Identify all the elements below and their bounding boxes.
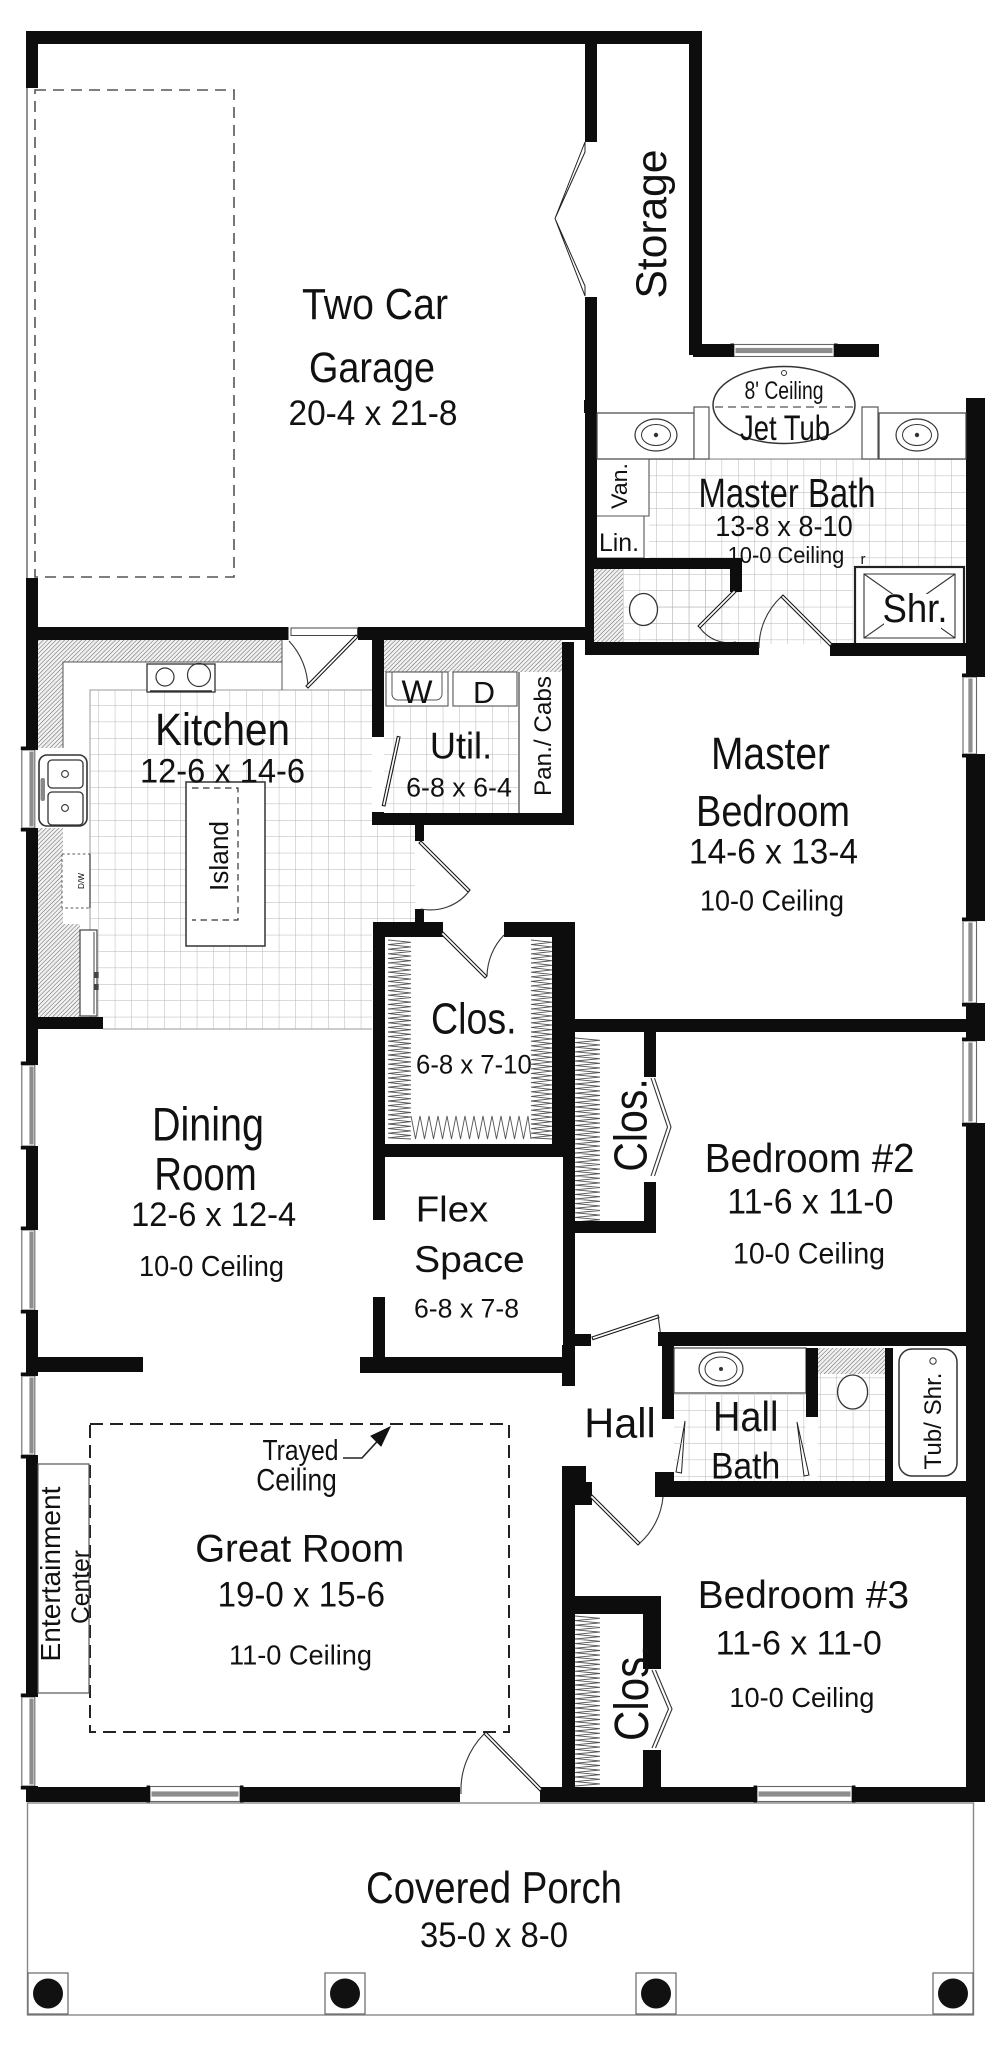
svg-text:r: r bbox=[861, 551, 866, 568]
svg-text:10-0 Ceiling: 10-0 Ceiling bbox=[139, 1251, 284, 1283]
svg-text:Shr.: Shr. bbox=[883, 587, 948, 631]
svg-text:Garage: Garage bbox=[309, 344, 435, 392]
svg-text:10-0 Ceiling: 10-0 Ceiling bbox=[700, 885, 844, 917]
svg-text:W: W bbox=[402, 673, 433, 710]
svg-text:11-0 Ceiling: 11-0 Ceiling bbox=[229, 1639, 372, 1670]
svg-text:Clos.: Clos. bbox=[431, 995, 517, 1043]
svg-text:13-8 x 8-10: 13-8 x 8-10 bbox=[715, 511, 853, 543]
svg-text:35-0 x 8-0: 35-0 x 8-0 bbox=[420, 1916, 568, 1955]
svg-text:Storage: Storage bbox=[629, 150, 676, 299]
svg-text:Van.: Van. bbox=[607, 463, 632, 509]
svg-text:20-4 x 21-8: 20-4 x 21-8 bbox=[289, 393, 458, 433]
svg-text:12-6 x 14-6: 12-6 x 14-6 bbox=[140, 753, 305, 791]
svg-text:19-0 x 15-6: 19-0 x 15-6 bbox=[218, 1575, 385, 1614]
svg-text:10-0 Ceiling: 10-0 Ceiling bbox=[729, 1682, 874, 1713]
svg-text:Entertainment: Entertainment bbox=[35, 1486, 66, 1661]
svg-text:Island: Island bbox=[204, 821, 234, 891]
svg-text:6-8 x 6-4: 6-8 x 6-4 bbox=[406, 773, 512, 803]
svg-text:Covered Porch: Covered Porch bbox=[366, 1864, 622, 1913]
svg-text:Hall: Hall bbox=[584, 1400, 656, 1447]
svg-text:10-0 Ceiling: 10-0 Ceiling bbox=[733, 1237, 885, 1270]
svg-text:6-8 x 7-10: 6-8 x 7-10 bbox=[416, 1050, 532, 1080]
svg-text:Bedroom #3: Bedroom #3 bbox=[698, 1574, 909, 1617]
svg-text:Clos.: Clos. bbox=[605, 1645, 659, 1741]
svg-text:Dining: Dining bbox=[152, 1098, 264, 1151]
svg-text:Kitchen: Kitchen bbox=[155, 704, 290, 755]
svg-text:Bedroom #2: Bedroom #2 bbox=[705, 1135, 915, 1181]
svg-text:Two Car: Two Car bbox=[302, 281, 448, 329]
svg-text:Clos.: Clos. bbox=[605, 1078, 657, 1172]
svg-text:Tub/ Shr.: Tub/ Shr. bbox=[921, 1373, 947, 1470]
svg-text:D/W: D/W bbox=[77, 872, 86, 889]
svg-text:Bath: Bath bbox=[711, 1444, 780, 1486]
svg-text:Master: Master bbox=[711, 728, 830, 779]
svg-text:Bedroom: Bedroom bbox=[696, 787, 850, 836]
svg-text:Center: Center bbox=[68, 1550, 95, 1624]
svg-text:Ceiling: Ceiling bbox=[256, 1463, 337, 1498]
svg-text:6-8 x 7-8: 6-8 x 7-8 bbox=[414, 1294, 519, 1324]
svg-text:Jet Tub: Jet Tub bbox=[740, 409, 830, 448]
svg-text:12-6 x 12-4: 12-6 x 12-4 bbox=[131, 1196, 296, 1234]
svg-text:Pan./ Cabs: Pan./ Cabs bbox=[530, 676, 557, 796]
svg-text:Hall: Hall bbox=[713, 1393, 778, 1440]
svg-text:10-0 Ceiling: 10-0 Ceiling bbox=[728, 542, 845, 568]
svg-text:Master Bath: Master Bath bbox=[699, 470, 876, 516]
svg-text:Lin.: Lin. bbox=[599, 530, 639, 557]
svg-text:Flex: Flex bbox=[416, 1189, 489, 1230]
svg-text:11-6 x 11-0: 11-6 x 11-0 bbox=[727, 1183, 893, 1222]
svg-text:8' Ceiling: 8' Ceiling bbox=[745, 377, 824, 405]
svg-text:11-6 x 11-0: 11-6 x 11-0 bbox=[716, 1624, 882, 1662]
svg-text:Util.: Util. bbox=[430, 726, 492, 767]
svg-text:14-6 x 13-4: 14-6 x 13-4 bbox=[689, 832, 858, 872]
svg-text:Room: Room bbox=[154, 1148, 257, 1200]
svg-text:Great Room: Great Room bbox=[195, 1527, 404, 1570]
svg-text:Space: Space bbox=[414, 1238, 525, 1280]
svg-text:D: D bbox=[473, 676, 495, 710]
